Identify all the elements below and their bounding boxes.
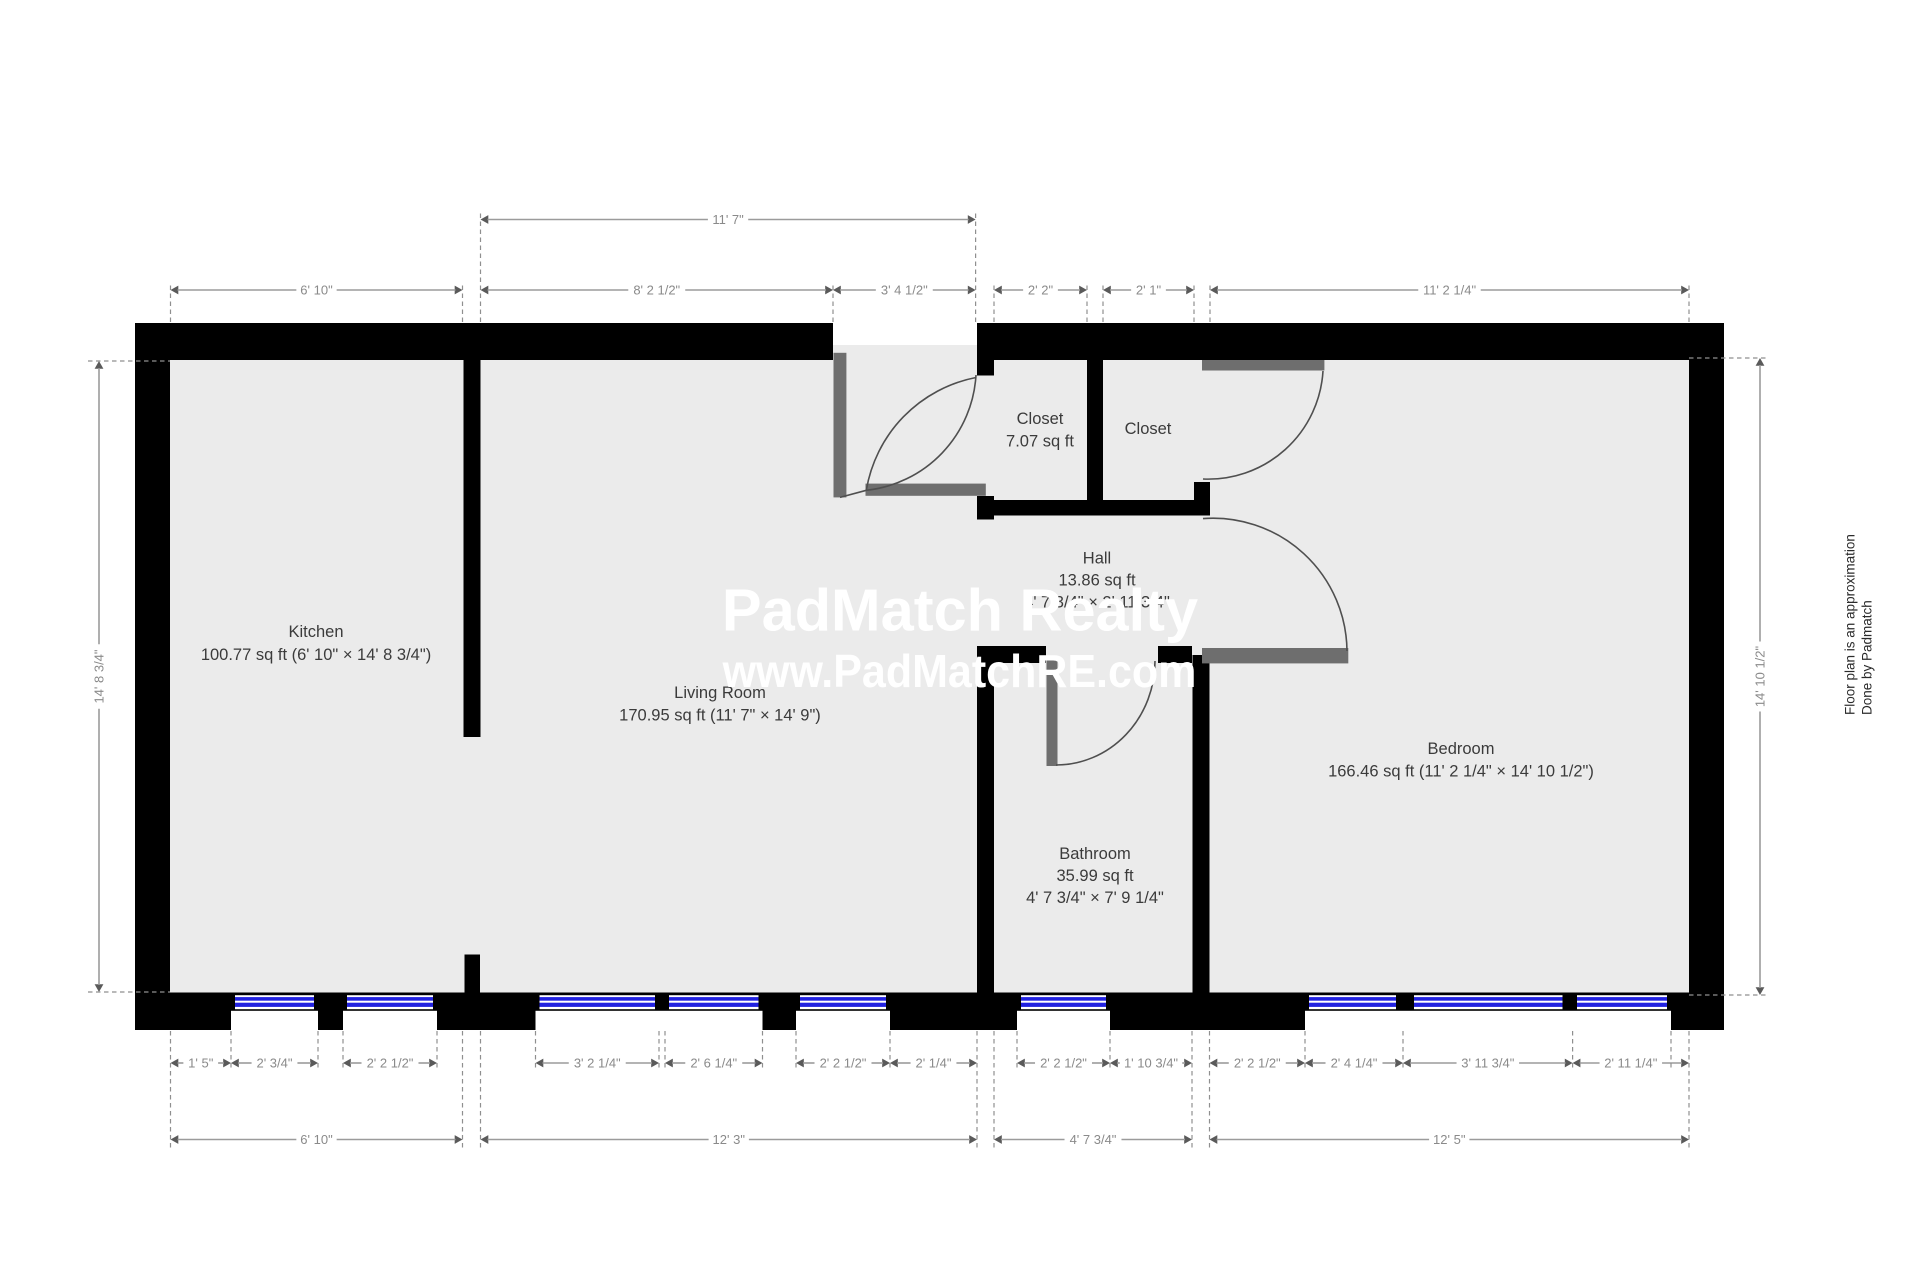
svg-text:100.77 sq ft (6' 10" × 14' 8 3: 100.77 sq ft (6' 10" × 14' 8 3/4")	[201, 646, 431, 664]
svg-text:14' 10 1/2": 14' 10 1/2"	[1753, 645, 1768, 707]
svg-text:Kitchen: Kitchen	[288, 623, 343, 641]
svg-text:11' 7": 11' 7"	[712, 212, 744, 227]
svg-text:Closet: Closet	[1125, 420, 1172, 438]
svg-text:12' 3": 12' 3"	[713, 1132, 746, 1147]
svg-text:12' 5": 12' 5"	[1433, 1132, 1466, 1147]
svg-text:8' 2 1/2": 8' 2 1/2"	[633, 283, 680, 298]
svg-text:4' 7 3/4" × 7' 9 1/4": 4' 7 3/4" × 7' 9 1/4"	[1026, 889, 1164, 907]
svg-text:Floor plan is an approximation: Floor plan is an approximation	[1843, 534, 1858, 715]
svg-text:166.46 sq ft (11' 2 1/4" × 14': 166.46 sq ft (11' 2 1/4" × 14' 10 1/2")	[1328, 763, 1594, 781]
svg-text:2' 6 1/4": 2' 6 1/4"	[690, 1056, 737, 1071]
svg-text:2' 2 1/2": 2' 2 1/2"	[1040, 1056, 1087, 1071]
svg-text:2' 2": 2' 2"	[1028, 283, 1054, 298]
svg-text:Done by Padmatch: Done by Padmatch	[1860, 600, 1875, 715]
svg-text:3' 11 3/4": 3' 11 3/4"	[1461, 1056, 1515, 1071]
svg-text:4' 7 3/4": 4' 7 3/4"	[1070, 1132, 1117, 1147]
svg-text:11' 2 1/4": 11' 2 1/4"	[1423, 283, 1477, 298]
svg-text:2' 2 1/2": 2' 2 1/2"	[1234, 1056, 1281, 1071]
svg-text:www.PadMatchRE.com: www.PadMatchRE.com	[722, 647, 1197, 698]
svg-text:2' 3/4": 2' 3/4"	[256, 1056, 292, 1071]
svg-text:2' 4 1/4": 2' 4 1/4"	[1331, 1056, 1378, 1071]
svg-text:7.07 sq ft: 7.07 sq ft	[1006, 433, 1074, 451]
svg-text:3' 4 1/2": 3' 4 1/2"	[881, 283, 928, 298]
svg-text:2' 1/4": 2' 1/4"	[915, 1056, 951, 1071]
svg-text:Hall: Hall	[1083, 550, 1111, 568]
svg-text:2' 1": 2' 1"	[1136, 283, 1162, 298]
svg-text:1' 10 3/4": 1' 10 3/4"	[1124, 1056, 1178, 1071]
svg-text:170.95 sq ft (11' 7" × 14' 9"): 170.95 sq ft (11' 7" × 14' 9")	[619, 707, 821, 725]
svg-text:35.99 sq ft: 35.99 sq ft	[1056, 867, 1133, 885]
svg-text:2' 11 1/4": 2' 11 1/4"	[1604, 1056, 1658, 1071]
svg-text:Bathroom: Bathroom	[1059, 845, 1131, 863]
svg-text:6' 10": 6' 10"	[300, 283, 333, 298]
svg-text:6' 10": 6' 10"	[300, 1132, 333, 1147]
svg-text:Bedroom: Bedroom	[1428, 740, 1495, 758]
svg-text:14' 8 3/4": 14' 8 3/4"	[92, 649, 107, 703]
svg-text:1' 5": 1' 5"	[188, 1056, 214, 1071]
svg-text:2' 2 1/2": 2' 2 1/2"	[820, 1056, 867, 1071]
svg-text:3' 2 1/4": 3' 2 1/4"	[574, 1056, 621, 1071]
svg-text:Closet: Closet	[1017, 410, 1064, 428]
svg-text:PadMatch Realty: PadMatch Realty	[722, 577, 1198, 644]
svg-text:2' 2 1/2": 2' 2 1/2"	[367, 1056, 414, 1071]
